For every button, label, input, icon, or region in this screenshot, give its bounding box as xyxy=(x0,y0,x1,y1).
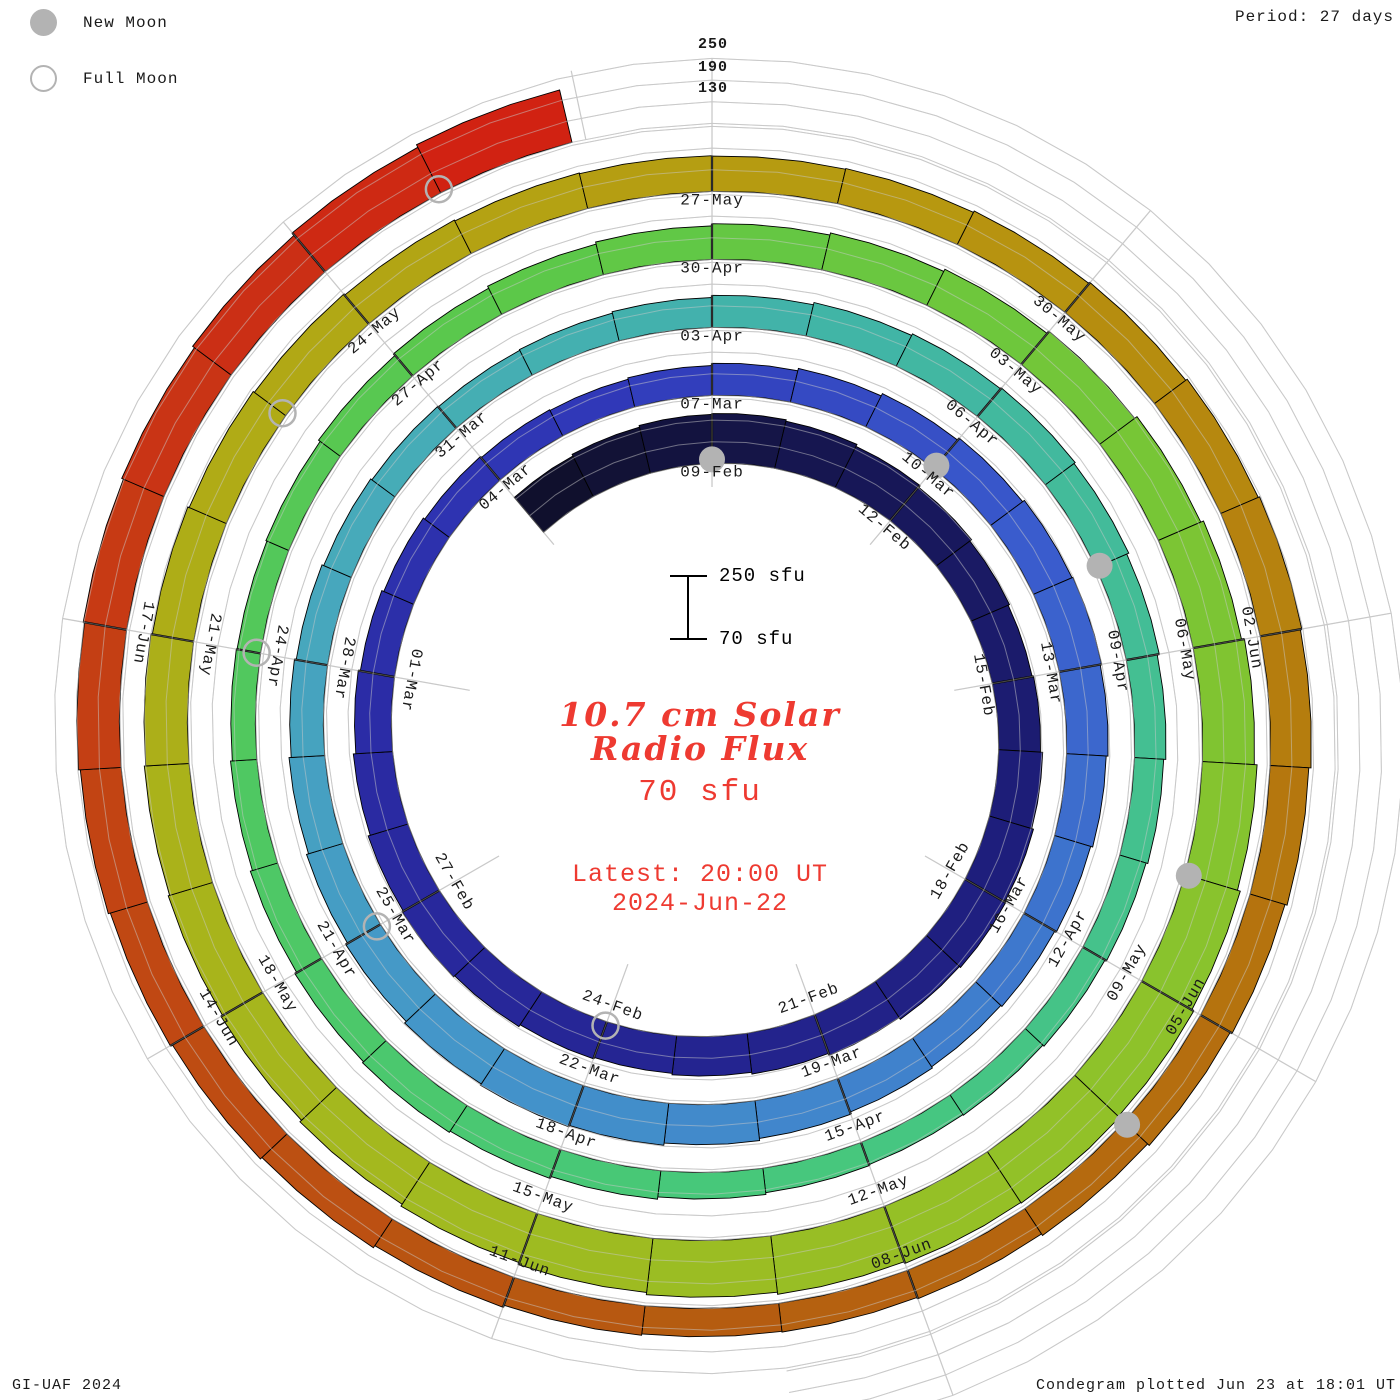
latest-time: Latest: 20:00 UT xyxy=(430,860,970,889)
chart-title-line2: Radio Flux xyxy=(430,732,970,766)
full-moon-icon xyxy=(30,65,57,92)
scale-bar-bottom-cap xyxy=(670,638,707,640)
day-flux-segment xyxy=(646,1236,777,1297)
date-label: 03-Apr xyxy=(680,327,744,345)
day-flux-segment xyxy=(1158,521,1241,648)
end-boundary-line xyxy=(571,71,586,140)
day-flux-segment xyxy=(551,1150,661,1200)
date-label: 01-Mar xyxy=(397,647,426,713)
new-moon-marker xyxy=(1176,863,1202,889)
new-moon-icon xyxy=(30,9,57,36)
day-flux-segment xyxy=(488,244,604,314)
plotted-timestamp: Condegram plotted Jun 23 at 18:01 UT xyxy=(1036,1377,1396,1394)
day-flux-segment xyxy=(144,634,194,766)
condegram-page: { "header": { "period_label": "Period: 2… xyxy=(0,0,1400,1400)
chart-title: 10.7 cm Solar Radio Flux xyxy=(430,698,970,766)
current-flux-value: 70 sfu xyxy=(430,775,970,810)
chart-title-line1: 10.7 cm Solar xyxy=(430,698,970,732)
credit-label: GI-UAF 2024 xyxy=(12,1377,122,1394)
day-flux-segment xyxy=(1250,766,1309,906)
date-label: 30-Apr xyxy=(680,259,744,277)
radial-tick-190: 190 xyxy=(698,59,728,76)
scale-bottom-label: 70 sfu xyxy=(719,628,793,650)
day-flux-segment xyxy=(822,233,944,305)
day-flux-segment xyxy=(1260,629,1311,768)
day-flux-segment xyxy=(806,303,912,367)
day-flux-segment xyxy=(1025,947,1105,1046)
scale-top-label: 250 sfu xyxy=(719,565,806,587)
day-flux-segment xyxy=(266,441,340,550)
day-flux-segment xyxy=(664,1101,760,1145)
latest-observation: Latest: 20:00 UT 2024-Jun-22 xyxy=(430,860,970,918)
day-flux-segment xyxy=(672,1033,752,1076)
day-flux-segment xyxy=(455,173,588,254)
day-flux-segment xyxy=(519,313,619,375)
scale-bar xyxy=(687,576,689,639)
day-flux-segment xyxy=(992,676,1040,752)
day-flux-segment xyxy=(355,671,395,754)
day-flux-segment xyxy=(77,622,127,770)
day-flux-segment xyxy=(394,288,502,376)
date-label: 24-Apr xyxy=(263,623,292,689)
period-label: Period: 27 days xyxy=(1235,8,1394,26)
day-flux-segment xyxy=(290,659,328,757)
day-flux-segment xyxy=(80,767,147,913)
legend-full-moon-label: Full Moon xyxy=(83,70,178,88)
legend-new-moon-label: New Moon xyxy=(83,14,168,32)
date-label: 07-Mar xyxy=(680,395,744,413)
scale-bar-top-cap xyxy=(670,575,707,577)
radial-tick-130: 130 xyxy=(698,80,728,97)
day-flux-segment xyxy=(1126,655,1166,760)
day-flux-segment xyxy=(861,1095,963,1165)
legend-new-moon: New Moon xyxy=(30,9,168,36)
date-label: 27-May xyxy=(680,191,744,209)
new-moon-marker xyxy=(1087,553,1113,579)
radial-tick-250: 250 xyxy=(698,36,728,53)
latest-date: 2024-Jun-22 xyxy=(430,889,970,918)
legend-full-moon: Full Moon xyxy=(30,65,178,92)
new-moon-marker xyxy=(1114,1112,1140,1138)
day-flux-segment xyxy=(384,518,450,604)
date-label: 09-Feb xyxy=(680,463,744,481)
day-flux-segment xyxy=(838,169,974,245)
day-flux-segment xyxy=(519,1214,653,1293)
date-label: 21-May xyxy=(196,612,225,678)
